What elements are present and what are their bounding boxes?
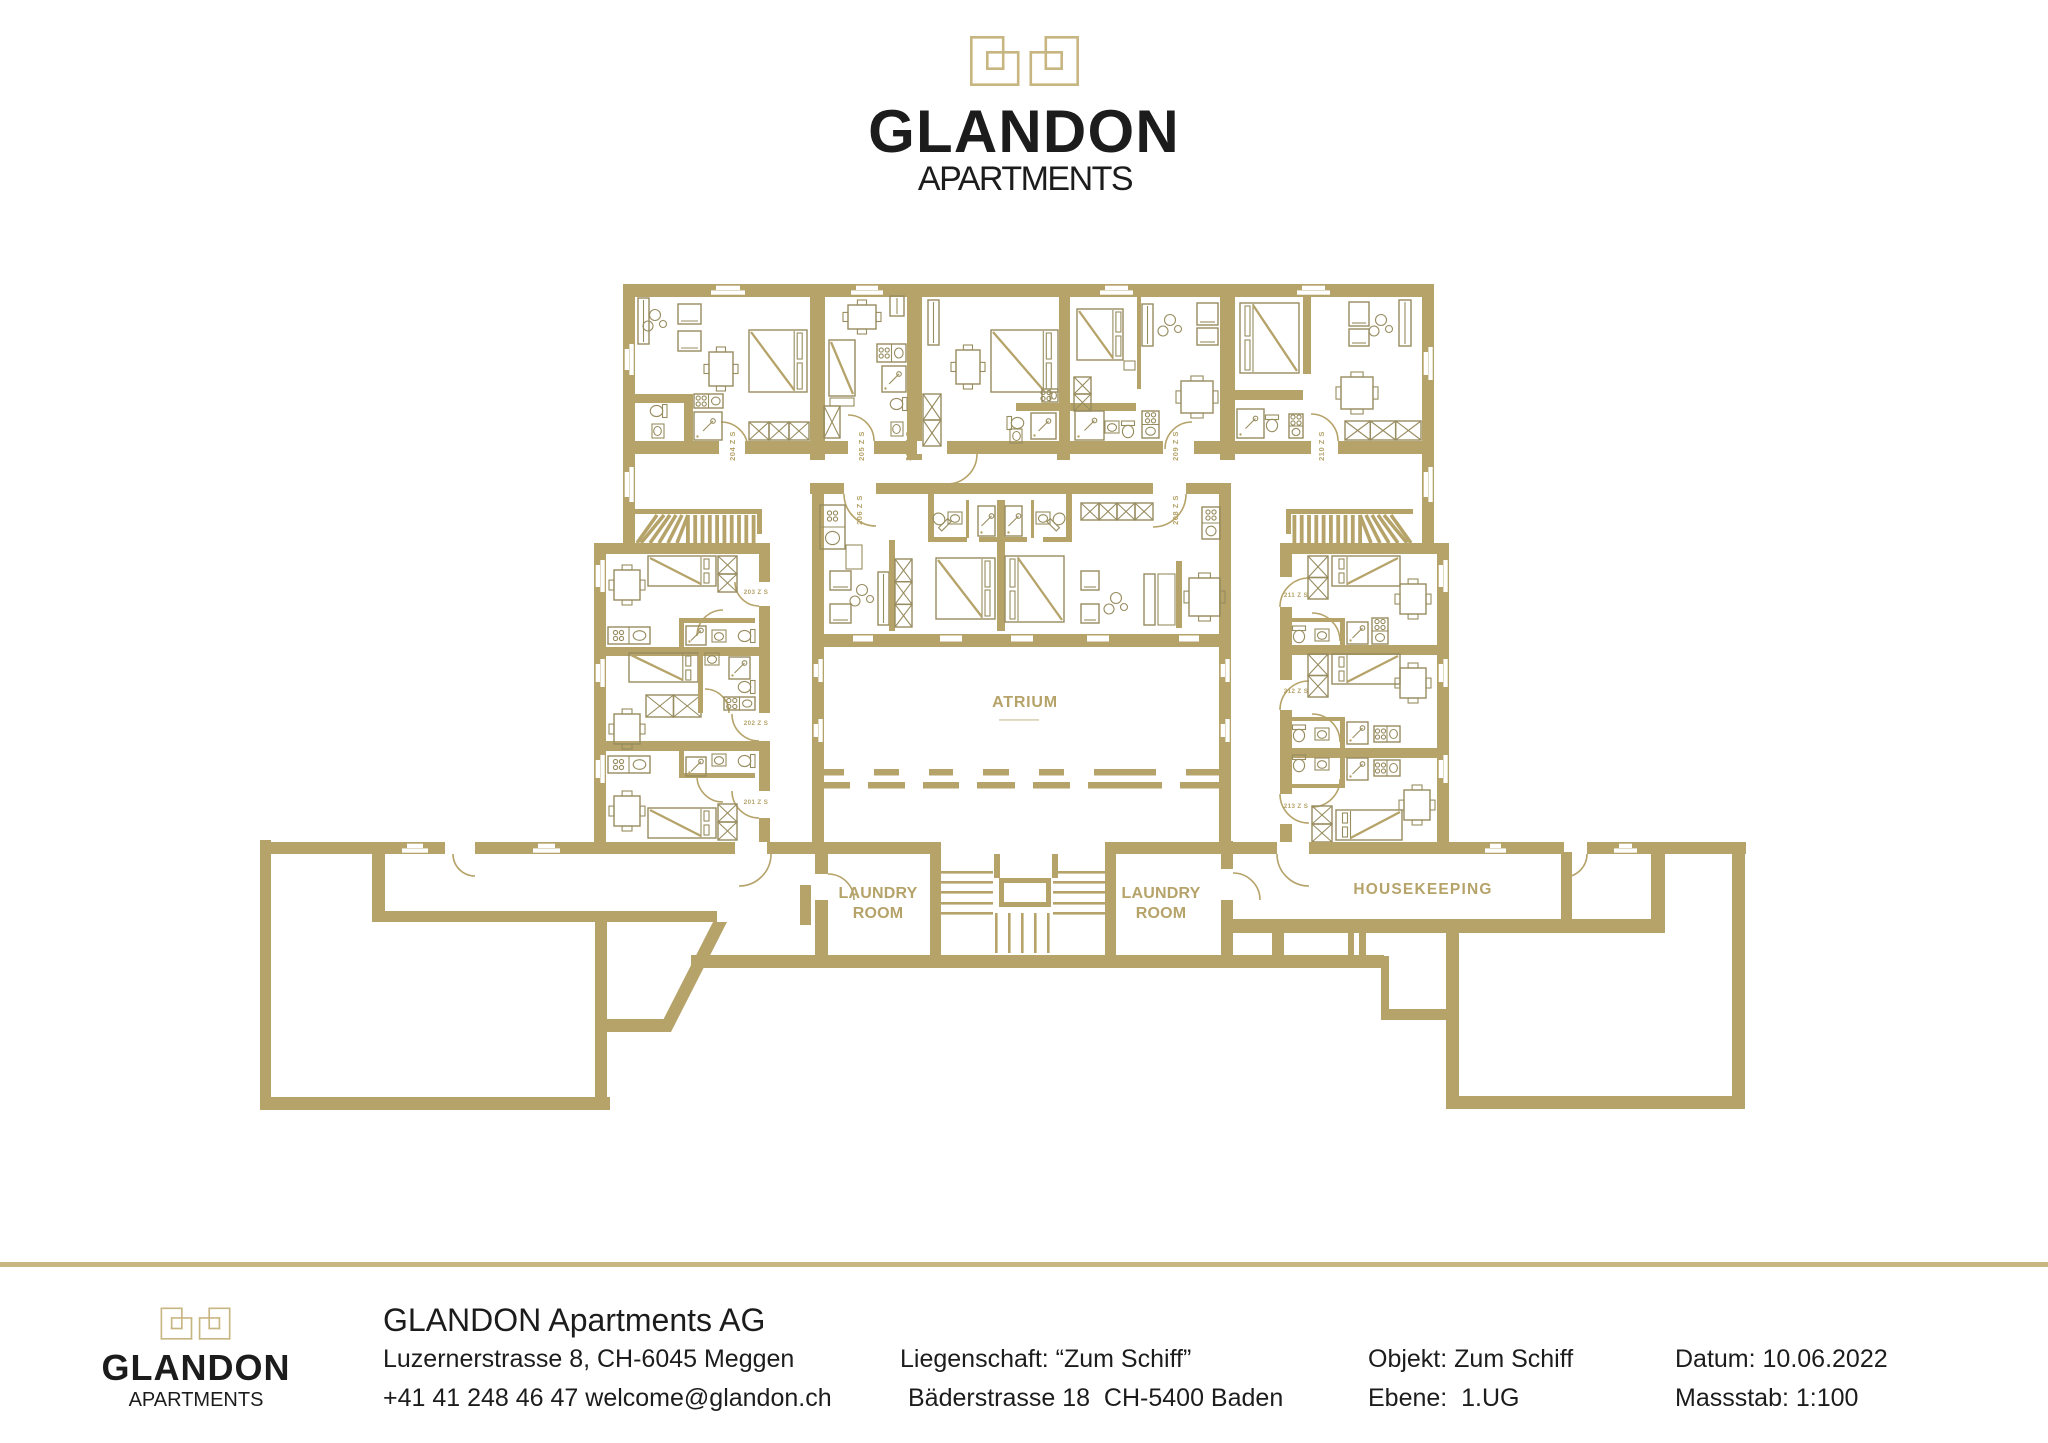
svg-text:205 Z S: 205 Z S [857,431,866,461]
svg-text:HOUSEKEEPING: HOUSEKEEPING [1353,881,1492,898]
svg-text:ROOM: ROOM [853,905,904,922]
svg-text:ATRIUM: ATRIUM [992,694,1058,711]
svg-text:LAUNDRY: LAUNDRY [1121,885,1200,902]
svg-text:206 Z S: 206 Z S [855,495,864,525]
svg-text:Objekt: Zum Schiff: Objekt: Zum Schiff [1368,1345,1573,1373]
svg-text:GLANDON: GLANDON [868,98,1180,165]
svg-text:207 Z S: 207 Z S [904,431,913,461]
svg-text:LAUNDRY: LAUNDRY [838,885,917,902]
svg-text:Bäderstrasse 18 CH-5400 Baden: Bäderstrasse 18 CH-5400 Baden [908,1384,1283,1412]
svg-text:208 Z S: 208 Z S [1171,495,1180,525]
svg-text:212 Z S: 212 Z S [1284,688,1308,695]
svg-text:Liegenschaft: “Zum Schiff”: Liegenschaft: “Zum Schiff” [900,1345,1191,1373]
svg-text:201 Z S: 201 Z S [744,799,768,806]
svg-text:Ebene: 1.UG: Ebene: 1.UG [1368,1384,1519,1412]
svg-text:Luzernerstrasse 8, CH-6045 Meg: Luzernerstrasse 8, CH-6045 Meggen [383,1345,794,1373]
svg-text:Datum: 10.06.2022: Datum: 10.06.2022 [1675,1345,1888,1373]
svg-text:213 Z S: 213 Z S [1284,803,1308,810]
svg-text:204 Z S: 204 Z S [728,431,737,461]
svg-text:GLANDON: GLANDON [102,1347,291,1388]
svg-text:211 Z S: 211 Z S [1284,592,1308,599]
svg-text:ROOM: ROOM [1136,905,1187,922]
svg-text:APARTMENTS: APARTMENTS [918,160,1133,198]
svg-text:+41 41 248 46 47 welcome@gland: +41 41 248 46 47 welcome@glandon.ch [383,1384,832,1412]
svg-text:209 Z S: 209 Z S [1171,431,1180,461]
svg-text:203 Z S: 203 Z S [744,589,768,596]
svg-text:210 Z S: 210 Z S [1317,431,1326,461]
svg-text:202 Z S: 202 Z S [744,720,768,727]
svg-text:GLANDON Apartments AG: GLANDON Apartments AG [383,1302,765,1338]
svg-text:Massstab: 1:100: Massstab: 1:100 [1675,1384,1858,1412]
svg-text:APARTMENTS: APARTMENTS [129,1389,264,1411]
